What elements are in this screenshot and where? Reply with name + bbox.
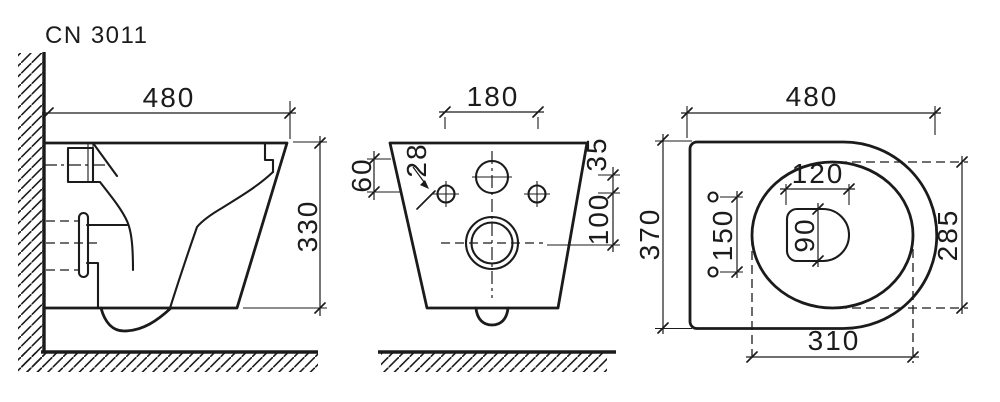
dim-back-vertical-offsets: 35 100 xyxy=(547,136,620,252)
drain-flange xyxy=(79,213,88,277)
trap-bump xyxy=(101,308,171,331)
dim-label-top-90: 90 xyxy=(789,217,820,252)
dim-label-top-310: 310 xyxy=(808,325,861,356)
dim-back-hole-diameter: 28 xyxy=(401,142,435,209)
dim-top-bowl-length: 310 xyxy=(746,237,919,363)
seat-hole-top xyxy=(709,193,718,202)
dim-back-top-offset: 60 xyxy=(346,151,400,200)
dim-top-seat-holes: 150 xyxy=(707,191,743,278)
inlet-spigot-line xyxy=(93,143,117,176)
wall-hatch xyxy=(18,53,44,372)
dim-top-sump-length: 120 xyxy=(780,158,855,205)
seat-hole-bottom xyxy=(709,268,718,277)
outlet-bump xyxy=(476,308,508,325)
dim-label-back-60: 60 xyxy=(346,157,377,192)
back-view: 180 60 28 35 100 xyxy=(346,81,620,372)
mount-hole-left-crosshair xyxy=(433,181,459,207)
floor-hatch-side xyxy=(20,352,318,372)
dim-label-back-100: 100 xyxy=(583,193,614,246)
dim-label-top-480: 480 xyxy=(786,81,839,112)
dim-label-side-480: 480 xyxy=(143,82,196,113)
dim-label-top-150: 150 xyxy=(707,209,738,262)
mount-hole-right-crosshair xyxy=(524,181,550,207)
dim-top-depth: 480 xyxy=(681,81,941,138)
technical-drawing-page: CN 3011 480 xyxy=(0,0,1000,402)
dim-label-top-120: 120 xyxy=(792,158,845,189)
dim-label-top-370: 370 xyxy=(634,208,665,261)
top-view: 480 370 150 120 90 xyxy=(634,81,968,363)
side-view: 480 330 xyxy=(18,52,327,372)
seat-hole-notch xyxy=(265,143,273,172)
dim-label-side-330: 330 xyxy=(292,200,323,253)
bowl-profile-outline xyxy=(44,143,287,308)
dim-top-sump-width: 90 xyxy=(789,203,823,267)
dim-back-hole-spacing: 180 xyxy=(439,81,544,129)
model-title: CN 3011 xyxy=(45,22,148,49)
dim-label-back-35: 35 xyxy=(581,136,612,171)
dim-label-back-180: 180 xyxy=(467,81,520,112)
dim-top-bowl-width: 285 xyxy=(838,156,968,314)
dim-label-back-28: 28 xyxy=(401,142,432,177)
dim-side-height: 330 xyxy=(243,136,327,316)
toilet-dimension-drawing: CN 3011 480 xyxy=(0,0,1000,402)
floor-hatch-back xyxy=(381,352,607,372)
dim-label-top-285: 285 xyxy=(932,209,963,262)
dim-top-width: 370 xyxy=(634,134,692,334)
leader-arrowhead xyxy=(420,180,429,189)
dim-side-depth: 480 xyxy=(42,82,296,139)
